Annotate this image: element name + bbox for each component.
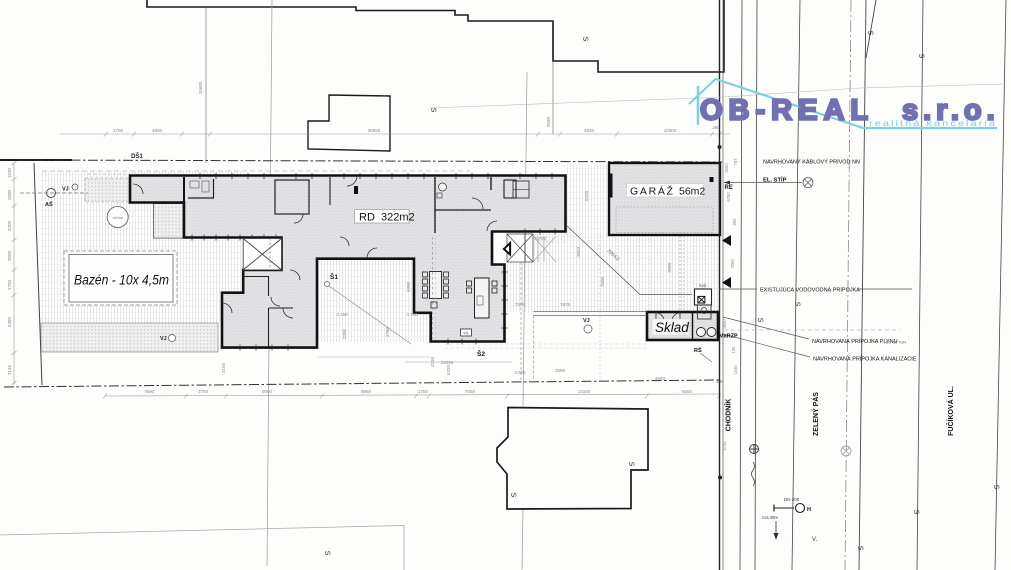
svg-text:3930: 3930	[584, 128, 595, 133]
svg-text:RD 322m2: RD 322m2	[359, 212, 415, 224]
svg-text:VJ: VJ	[583, 318, 590, 324]
svg-text:FUČÍKOVÁ UL.: FUČÍKOVÁ UL.	[946, 386, 955, 436]
svg-text:6750: 6750	[726, 192, 731, 202]
svg-text:6220: 6220	[446, 364, 451, 375]
svg-text:3600: 3600	[722, 319, 727, 329]
svg-text:5320: 5320	[584, 190, 589, 201]
svg-text:2600: 2600	[7, 189, 12, 200]
svg-text:ZELENÝ PÁS: ZELENÝ PÁS	[811, 392, 820, 436]
svg-text:OB-REAL: OB-REAL	[700, 95, 874, 127]
svg-text:1440: 1440	[733, 365, 738, 375]
svg-text:787: 787	[733, 158, 738, 166]
svg-text:3750: 3750	[198, 389, 209, 394]
svg-text:2600: 2600	[724, 163, 729, 173]
svg-text:4745: 4745	[722, 441, 727, 451]
svg-text:4,0: 4,0	[716, 379, 723, 384]
svg-text:NAVRHOVANÁ PRÍPOJKA KANALIZÁCI: NAVRHOVANÁ PRÍPOJKA KANALIZÁCIE	[813, 356, 917, 363]
svg-text:4.975: 4.975	[514, 370, 526, 375]
svg-text:FŠ: FŠ	[463, 331, 468, 336]
svg-text:2760: 2760	[385, 326, 390, 337]
svg-text:5300: 5300	[406, 281, 411, 292]
svg-text:Sklad: Sklad	[655, 320, 689, 335]
svg-text:EXISTUJÚCA VODOVODNÁ PRÍPOJKA: EXISTUJÚCA VODOVODNÁ PRÍPOJKA	[760, 287, 860, 294]
svg-text:DN 200: DN 200	[784, 497, 800, 502]
svg-text:7060: 7060	[465, 389, 476, 394]
svg-text:Š1: Š1	[330, 272, 338, 281]
svg-text:7865: 7865	[730, 259, 735, 269]
svg-text:MaRZP: MaRZP	[719, 334, 738, 340]
svg-text:6650: 6650	[682, 389, 693, 394]
svg-text:VJ: VJ	[160, 336, 167, 342]
svg-text:DŠ1: DŠ1	[131, 152, 143, 160]
svg-text:Š2: Š2	[477, 349, 485, 358]
svg-text:4.700: 4.700	[406, 312, 418, 317]
svg-text:GARÁŽ: GARÁŽ	[630, 185, 675, 198]
svg-text:NAVRHOVANÝ KÁBLOVÝ PRÍVOD NN: NAVRHOVANÝ KÁBLOVÝ PRÍVOD NN	[763, 159, 860, 166]
svg-text:3155: 3155	[221, 362, 226, 373]
svg-text:4650: 4650	[655, 376, 666, 381]
svg-text:9000: 9000	[262, 389, 273, 394]
svg-text:8850: 8850	[361, 389, 372, 394]
svg-text:5,755: 5,755	[534, 236, 546, 241]
svg-text:RE: RE	[725, 185, 733, 191]
svg-text:1750: 1750	[418, 389, 429, 394]
svg-text:2300: 2300	[342, 328, 347, 339]
svg-text:4.150: 4.150	[336, 312, 348, 317]
svg-text:7500: 7500	[600, 276, 605, 287]
svg-text:CHODNÍK: CHODNÍK	[724, 399, 733, 432]
svg-text:realitná kancelária: realitná kancelária	[869, 118, 997, 128]
svg-text:7600: 7600	[144, 389, 155, 394]
svg-text:Bazén - 10x 4,5m: Bazén - 10x 4,5m	[74, 272, 169, 288]
svg-text:AŠ: AŠ	[45, 200, 53, 208]
svg-text:136: 136	[731, 346, 736, 354]
svg-text:cca 30m: cca 30m	[762, 515, 778, 520]
svg-text:4900: 4900	[152, 128, 163, 133]
svg-text:vírivka: vírivka	[113, 216, 123, 220]
svg-text:10300: 10300	[664, 128, 677, 133]
svg-text:9590: 9590	[546, 116, 551, 127]
svg-text:3595: 3595	[555, 368, 566, 373]
svg-text:22290: 22290	[441, 360, 454, 365]
svg-text:56m2: 56m2	[679, 186, 705, 198]
svg-text:1530: 1530	[7, 167, 12, 178]
svg-text:VJ: VJ	[62, 187, 69, 193]
svg-text:3000: 3000	[7, 250, 12, 261]
svg-text:7675: 7675	[560, 302, 571, 307]
svg-text:kvb: kvb	[699, 283, 707, 288]
svg-text:15685: 15685	[198, 81, 203, 94]
svg-text:V.: V.	[812, 537, 817, 543]
svg-text:5450: 5450	[7, 316, 12, 327]
svg-text:RŠ: RŠ	[694, 346, 702, 354]
svg-text:H: H	[807, 507, 811, 513]
svg-text:3200: 3200	[7, 220, 12, 231]
svg-text:NAVRHOVANÁ PRÍPOJKA PLYNU: NAVRHOVANÁ PRÍPOJKA PLYNU	[812, 338, 898, 345]
svg-text:3145: 3145	[7, 364, 12, 375]
svg-text:2700: 2700	[113, 128, 124, 133]
svg-text:2750: 2750	[7, 279, 12, 290]
svg-text:3603: 3603	[576, 246, 581, 257]
svg-text:36850: 36850	[368, 128, 381, 133]
svg-text:860: 860	[732, 218, 737, 226]
svg-text:13150: 13150	[578, 389, 591, 394]
svg-text:7000: 7000	[667, 262, 672, 273]
svg-text:7500: 7500	[515, 302, 526, 307]
svg-text:D5 4,5 TUN: D5 4,5 TUN	[886, 341, 906, 345]
